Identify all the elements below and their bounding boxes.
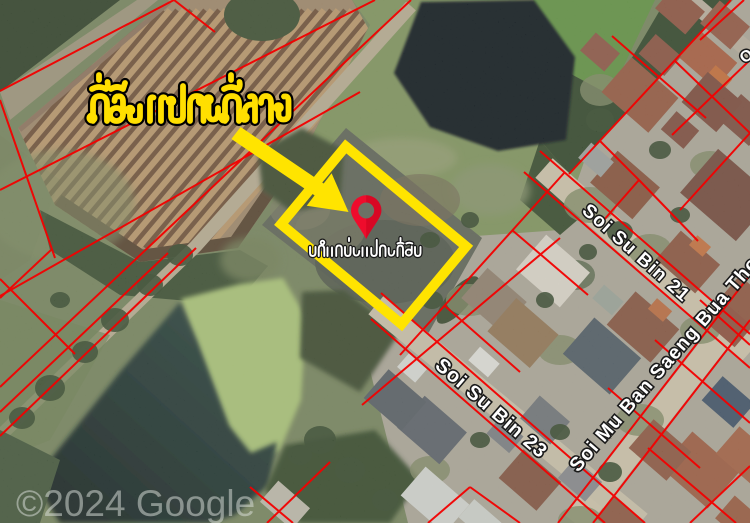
svg-text:©2024 Google: ©2024 Google bbox=[16, 483, 255, 523]
